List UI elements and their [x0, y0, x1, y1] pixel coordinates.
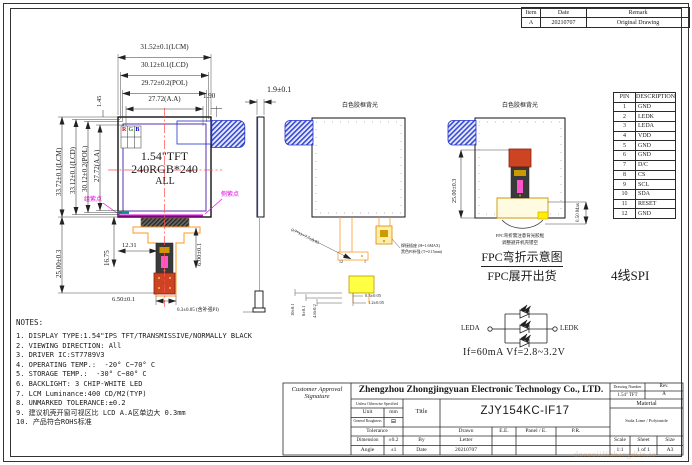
table-cell: LEDA	[636, 122, 676, 132]
led-spec-label: If=60mA Vf=2.8~3.2V	[463, 348, 565, 359]
led-circuit-diagram	[488, 305, 557, 347]
backlight-tape-folded	[448, 121, 476, 146]
dim-aa-width: 27.72(A.A)	[126, 96, 203, 103]
tb-date-value: 20210707	[440, 448, 492, 454]
table-row: 8CS	[614, 170, 676, 180]
dim-open-b: 8±0.1	[302, 306, 307, 316]
dim-open-a: 10±0.1	[291, 303, 296, 316]
dim-fpc-drop-height: 25.00±0.3	[56, 250, 63, 278]
description-col-header: DESCRIPTION	[636, 93, 676, 103]
table-cell: 9	[614, 180, 636, 190]
table-cell: GND	[636, 141, 676, 151]
table-cell: 4	[614, 131, 636, 141]
tb-customer-approval: Customer Approval Signature	[285, 386, 349, 401]
tb-dimension-tolerance: ±0.2	[384, 438, 403, 444]
table-row: 12GND	[614, 209, 676, 219]
tb-title-label: Title	[403, 409, 440, 416]
table-cell: 3	[614, 122, 636, 132]
tb-part-number: ZJY154KC-IF17	[440, 405, 610, 417]
rgb-b: B	[135, 127, 141, 133]
dim-offset: 12.31	[122, 243, 137, 250]
tb-sheet-label: Sheet	[630, 438, 657, 444]
tb-by-value: Letter	[440, 438, 492, 444]
engineering-drawing-sheet: Item Date Remark A 20210707 Original Dra…	[0, 0, 692, 465]
revision-table: Item Date Remark A 20210707 Original Dra…	[521, 7, 690, 28]
table-cell: 11	[614, 199, 636, 209]
dim-lcd-width: 30.12±0.1(LCD)	[120, 62, 209, 69]
tb-unit-value: mm	[384, 410, 403, 416]
rgb-pixel-label: RGB	[122, 127, 142, 133]
tb-date-label: Date	[403, 448, 440, 454]
table-cell: 5	[614, 141, 636, 151]
tb-rev-label: Rev.	[645, 384, 683, 389]
table-cell: LEDK	[636, 112, 676, 122]
tb-size-value: A3	[657, 448, 683, 454]
backlight-tape-front	[212, 121, 245, 148]
tb-drawing-number: 1.54" TFT	[610, 393, 645, 398]
table-cell: 8	[614, 170, 636, 180]
tb-material-label: Material	[610, 401, 683, 407]
note-item: 9. 建议机壳开窗可视区比 LCD A.A区单边大 0.3mm	[16, 409, 252, 419]
dim-gap-right: 1.90	[203, 93, 215, 100]
tb-dimension-label: Dimension	[351, 438, 384, 443]
table-row: 2LEDK	[614, 112, 676, 122]
table-cell: GND	[636, 102, 676, 112]
rev-item: A	[522, 18, 541, 28]
table-row: 1GND	[614, 102, 676, 112]
backlight-label-open: 白色胶框背光	[336, 103, 384, 109]
note-item: 8. UNMARKED TOLERANCE:±0.2	[16, 399, 252, 409]
table-cell: 2	[614, 112, 636, 122]
rev-date: 20210707	[541, 18, 587, 28]
note-item: 6. BACKLIGHT: 3 CHIP-WHITE LED	[16, 380, 252, 390]
dim-gap-left: 1.45	[97, 96, 104, 107]
notes-list: 1. DISPLAY TYPE:1.54"IPS TFT/TRANSMISSIV…	[16, 332, 252, 428]
dim-open-c: 4.8±0.2	[313, 304, 318, 318]
fold-note-1: FPC弯折需注意背光胶框	[490, 234, 550, 239]
tb-material-value: Soda Lime / Polyimide	[610, 419, 683, 424]
notes-title: NOTES:	[16, 318, 252, 327]
dim-aa-height: 27.72(A.A)	[94, 150, 101, 182]
panel-viewing-label: ALL	[150, 177, 180, 188]
table-row: 11RESET	[614, 199, 676, 209]
rev-col-remark: Remark	[587, 8, 690, 18]
note-item: 5. STORAGE TEMP.: -30° C~80° C	[16, 370, 252, 380]
table-cell: SDA	[636, 189, 676, 199]
panel-resolution-label: 240RGB*240	[118, 163, 211, 176]
interface-type-label: 4线SPI	[611, 269, 649, 283]
side-view	[245, 99, 276, 312]
backlight-label-folded: 白色胶框背光	[496, 103, 544, 109]
pin-col-header: PIN	[614, 93, 636, 103]
driver-ic-area	[141, 218, 189, 227]
tb-drawn-label: Drawn	[440, 429, 492, 435]
led-anode-label: LEDA	[461, 325, 480, 332]
table-header-row: PIN DESCRIPTION	[614, 93, 676, 103]
table-cell: GND	[636, 209, 676, 219]
table-row: 6GND	[614, 151, 676, 161]
note-item: 3. DRIVER IC:ST7789V3	[16, 351, 252, 361]
tb-roughness-label: General Roughness	[352, 419, 383, 423]
tb-unless-otherwise: Unless Otherwise Specified	[351, 402, 403, 406]
dim-open-d: 0.3±0.05	[365, 294, 381, 299]
table-row: 7D/C	[614, 160, 676, 170]
table-row: 9SCL	[614, 180, 676, 190]
table-cell: D/C	[636, 160, 676, 170]
table-cell: 1	[614, 102, 636, 112]
pin-1-label: 1	[364, 260, 366, 264]
panel-size-label: 1.54"TFT	[122, 150, 207, 163]
backlight-tape-open	[285, 121, 313, 146]
dim-pol-height: 30.12±0.2(POL)	[82, 146, 89, 192]
fold-diagram-caption: FPC弯折示意图	[481, 251, 563, 267]
table-row: 10SDA	[614, 189, 676, 199]
dim-tail-length: 6.00±0.1	[197, 243, 204, 266]
back-view-folded	[448, 118, 586, 228]
tb-scale-label: Scale	[610, 438, 630, 444]
fpc-thickness-note: 0.3±0.05 (含补强PI)	[177, 308, 219, 313]
led-cathode-label: LEDK	[560, 325, 579, 332]
dim-folded-clearance: 0.50 Max	[576, 203, 581, 222]
dim-tail-width: 6.50±0.1	[112, 297, 135, 304]
tb-company-name: Zhengzhou Zhongjingyuan Electronic Techn…	[352, 386, 610, 396]
tb-angle-label: Angle	[351, 448, 384, 454]
dim-module-thickness: 1.9±0.1	[267, 86, 291, 94]
table-cell: 10	[614, 189, 636, 199]
tb-ee-label: E.E.	[492, 429, 516, 435]
rev-col-date: Date	[541, 8, 587, 18]
dim-open-e: 1.2±0.05	[368, 301, 384, 306]
tb-roughness-symbol-icon: ⊟	[384, 419, 403, 425]
tb-by-label: By	[403, 438, 440, 444]
fold-note-2: 调整避开机壳镂空	[496, 241, 544, 246]
tb-pr-label: P.R.	[556, 429, 596, 435]
notes-block: NOTES: 1. DISPLAY TYPE:1.54"IPS TFT/TRAN…	[16, 318, 252, 428]
rev-remark: Original Drawing	[587, 18, 690, 28]
rev-col-item: Item	[522, 8, 541, 18]
tb-panel-label: Panel / E.	[516, 429, 556, 435]
table-cell: 7	[614, 160, 636, 170]
note-item: 2. VIEWING DIRECTION: All	[16, 342, 252, 352]
table-cell: GND	[636, 151, 676, 161]
dim-folded-height: 25.00±0.3	[452, 179, 458, 203]
dim-lcm-height: 33.72±0.1(LCM)	[56, 148, 63, 196]
note-item: 10. 产品符合ROHS标准	[16, 418, 252, 428]
dim-pol-width: 29.72±0.2(POL)	[122, 80, 207, 87]
table-cell: 6	[614, 151, 636, 161]
connector-note-2: 黑色PI补强 (T=0.15mm)	[401, 250, 442, 254]
tb-tolerance-label: Tolerance	[351, 429, 403, 435]
note-item: 7. LCM Luminance:400 CD/M2(TYP)	[16, 390, 252, 400]
dim-tail-height: 16.75	[104, 250, 111, 266]
connector-note-1: 焊接插座 (H=1.6MAX)	[401, 244, 440, 248]
table-row: 4VDD	[614, 131, 676, 141]
dim-lcd-height: 33.12±0.1(LCD)	[70, 147, 77, 194]
table-row: A 20210707 Original Drawing	[522, 18, 690, 28]
purple-dot-label-left: 组紫点	[84, 197, 102, 203]
back-view-open	[285, 118, 405, 306]
pin-12-label: 12	[339, 260, 343, 264]
watermark: dooooiif6zhangdOo.to	[574, 450, 656, 459]
dim-lcm-width: 31.52±0.1(LCM)	[118, 44, 211, 51]
note-item: 1. DISPLAY TYPE:1.54"IPS TFT/TRANSMISSIV…	[16, 332, 252, 342]
purple-dot-label-right: 侧紫点	[221, 192, 239, 198]
tb-angle-tolerance: ±1	[384, 448, 403, 454]
pin-description-table: PIN DESCRIPTION 1GND2LEDK3LEDA4VDD5GND6G…	[613, 92, 676, 219]
table-cell: 12	[614, 209, 636, 219]
table-cell: VDD	[636, 131, 676, 141]
pin-table-body: 1GND2LEDK3LEDA4VDD5GND6GND7D/C8CS9SCL10S…	[614, 102, 676, 218]
table-cell: CS	[636, 170, 676, 180]
note-item: 4. OPERATING TEMP.: -20° C~70° C	[16, 361, 252, 371]
front-view-outline	[103, 108, 245, 307]
tb-size-label: Size	[657, 438, 683, 444]
fpc-fold-arc	[502, 220, 543, 228]
fpc-stiffener-open	[349, 276, 374, 293]
led-symbols	[520, 305, 531, 347]
table-row: 3LEDA	[614, 122, 676, 132]
tb-drawing-number-label: Drawing Number	[610, 385, 645, 389]
table-cell: SCL	[636, 180, 676, 190]
tb-unit-label: Unit	[351, 410, 384, 416]
fpc-stiffener-folded	[509, 149, 531, 167]
ship-flat-caption: FPC展开出货	[487, 270, 557, 283]
table-cell: RESET	[636, 199, 676, 209]
tb-rev-value: A	[645, 392, 683, 397]
table-header-row: Item Date Remark	[522, 8, 690, 18]
table-row: 5GND	[614, 141, 676, 151]
